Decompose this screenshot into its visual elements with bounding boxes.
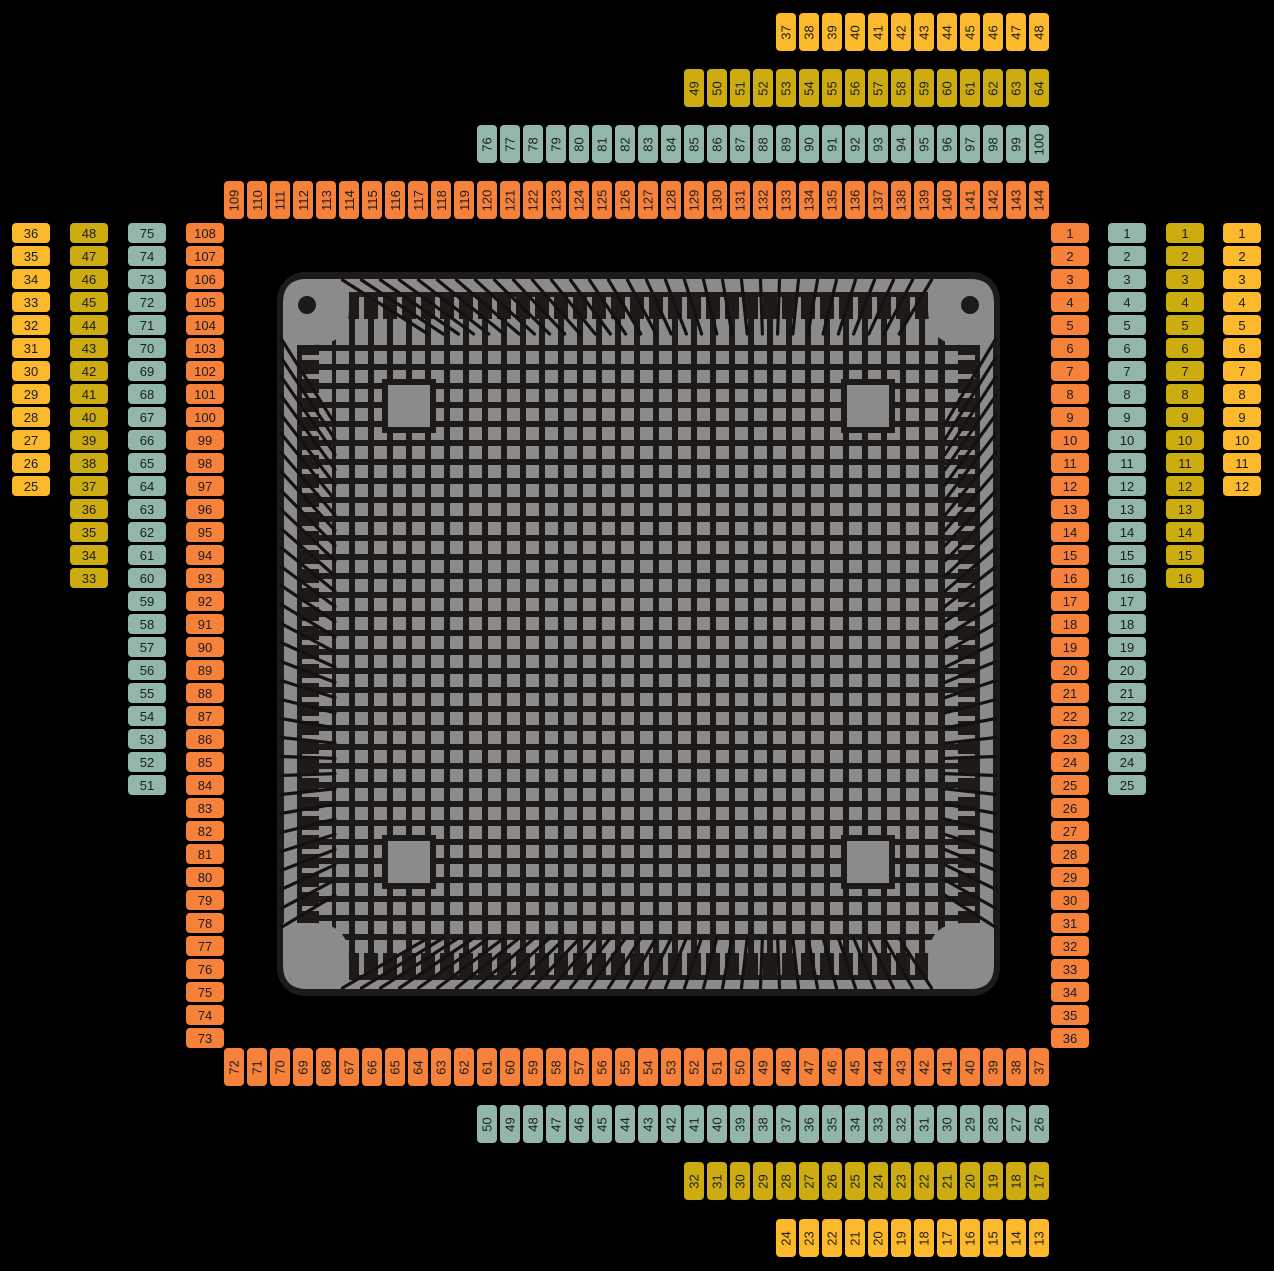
pin-number: 53	[140, 733, 154, 746]
pin-label-ring-100-left-74: 74	[128, 246, 166, 266]
pin-number: 31	[24, 342, 38, 355]
pin-number: 46	[826, 1060, 839, 1074]
pin-label-ring-64-bottom-29: 29	[753, 1162, 773, 1200]
pin-label-ring-48-bottom-16: 16	[960, 1219, 980, 1257]
pin-number: 133	[780, 189, 793, 211]
pin-label-ring-100-left-59: 59	[128, 591, 166, 611]
pin-label-ring-64-left-44: 44	[70, 315, 108, 335]
pin-label-ring-144-bottom-42: 42	[914, 1048, 934, 1086]
pin-number: 78	[527, 137, 540, 151]
pin-number: 86	[711, 137, 724, 151]
pin-number: 27	[1010, 1117, 1023, 1131]
pin-number: 90	[198, 641, 212, 654]
pin-label-ring-144-left-91: 91	[186, 614, 224, 634]
pin-number: 47	[803, 1060, 816, 1074]
pin-label-ring-48-bottom-24: 24	[776, 1219, 796, 1257]
pin-label-ring-144-left-98: 98	[186, 453, 224, 473]
pin-label-ring-144-top-130: 130	[707, 181, 727, 219]
pin-label-ring-144-bottom-67: 67	[339, 1048, 359, 1086]
pin-number: 40	[82, 411, 96, 424]
pin-number: 30	[734, 1174, 747, 1188]
pin-label-ring-144-left-106: 106	[186, 269, 224, 289]
pin-number: 51	[734, 81, 747, 95]
pin-number: 47	[550, 1117, 563, 1131]
pin-label-ring-100-top-79: 79	[546, 125, 566, 163]
pin-label-ring-144-bottom-44: 44	[868, 1048, 888, 1086]
pin-label-ring-64-bottom-27: 27	[799, 1162, 819, 1200]
pin-label-ring-144-bottom-65: 65	[385, 1048, 405, 1086]
pin-number: 15	[987, 1231, 1000, 1245]
pin-label-ring-100-bottom-50: 50	[477, 1105, 497, 1143]
pin-number: 5	[1181, 319, 1188, 332]
pin-number: 8	[1238, 388, 1245, 401]
pin-label-ring-144-right-20: 20	[1051, 660, 1089, 680]
pin-label-ring-64-left-36: 36	[70, 499, 108, 519]
pin-number: 31	[918, 1117, 931, 1131]
pin-number: 35	[1063, 1009, 1077, 1022]
pin-number: 24	[1120, 756, 1134, 769]
pin-label-ring-64-right-7: 7	[1166, 361, 1204, 381]
pin-label-ring-144-top-111: 111	[270, 181, 290, 219]
pin-label-ring-144-left-84: 84	[186, 775, 224, 795]
pin-number: 60	[504, 1060, 517, 1074]
pin-number: 26	[1033, 1117, 1046, 1131]
pin-label-ring-100-top-78: 78	[523, 125, 543, 163]
pin-label-ring-64-right-3: 3	[1166, 269, 1204, 289]
pin-label-ring-48-left-30: 30	[12, 361, 50, 381]
pin-label-ring-144-top-126: 126	[615, 181, 635, 219]
pin-label-ring-144-right-22: 22	[1051, 706, 1089, 726]
pin-number: 40	[964, 1060, 977, 1074]
pin-label-ring-48-top-42: 42	[891, 13, 911, 51]
pin-number: 49	[688, 81, 701, 95]
pin-label-ring-100-right-1: 1	[1108, 223, 1146, 243]
pin-number: 5	[1238, 319, 1245, 332]
pin-label-ring-144-left-108: 108	[186, 223, 224, 243]
pin-label-ring-144-bottom-63: 63	[431, 1048, 451, 1086]
pin-label-ring-100-left-58: 58	[128, 614, 166, 634]
pin-label-ring-144-bottom-38: 38	[1006, 1048, 1026, 1086]
pin-label-ring-100-right-15: 15	[1108, 545, 1146, 565]
pin-label-ring-48-right-2: 2	[1223, 246, 1261, 266]
pin-label-ring-64-bottom-19: 19	[983, 1162, 1003, 1200]
pin-number: 64	[140, 480, 154, 493]
pin-number: 73	[198, 1032, 212, 1045]
pin-label-ring-100-left-73: 73	[128, 269, 166, 289]
pin-number: 38	[757, 1117, 770, 1131]
pin-number: 123	[550, 189, 563, 211]
pin-label-ring-144-right-15: 15	[1051, 545, 1089, 565]
pin-label-ring-48-right-7: 7	[1223, 361, 1261, 381]
pin-number: 134	[803, 189, 816, 211]
pin-label-ring-100-top-83: 83	[638, 125, 658, 163]
pin-label-ring-48-top-48: 48	[1029, 13, 1049, 51]
pin-label-ring-64-bottom-18: 18	[1006, 1162, 1026, 1200]
pin-label-ring-48-top-43: 43	[914, 13, 934, 51]
pin-number: 49	[504, 1117, 517, 1131]
pin-label-ring-144-top-118: 118	[431, 181, 451, 219]
pin-label-ring-144-bottom-53: 53	[661, 1048, 681, 1086]
pin-label-ring-144-left-74: 74	[186, 1005, 224, 1025]
pin-label-ring-64-top-62: 62	[983, 69, 1003, 107]
pin-number: 18	[1010, 1174, 1023, 1188]
pin-number: 20	[1063, 664, 1077, 677]
pin-number: 128	[665, 189, 678, 211]
pin-number: 36	[82, 503, 96, 516]
pin-label-ring-64-right-9: 9	[1166, 407, 1204, 427]
pin-number: 74	[140, 250, 154, 263]
pin-label-ring-144-right-33: 33	[1051, 959, 1089, 979]
pin-number: 30	[24, 365, 38, 378]
pin-number: 22	[826, 1231, 839, 1245]
pin-label-ring-144-right-17: 17	[1051, 591, 1089, 611]
pin-label-ring-48-bottom-15: 15	[983, 1219, 1003, 1257]
pin-label-ring-100-top-100: 100	[1029, 125, 1049, 163]
pin-label-ring-100-bottom-46: 46	[569, 1105, 589, 1143]
pin-label-ring-64-top-58: 58	[891, 69, 911, 107]
pin-number: 47	[1010, 25, 1023, 39]
pin-number: 99	[1010, 137, 1023, 151]
pin-number: 50	[734, 1060, 747, 1074]
pin-number: 20	[872, 1231, 885, 1245]
pin-number: 55	[619, 1060, 632, 1074]
pin-label-ring-100-top-82: 82	[615, 125, 635, 163]
pin-label-ring-48-top-40: 40	[845, 13, 865, 51]
pin-number: 51	[140, 779, 154, 792]
pin-label-ring-144-bottom-37: 37	[1029, 1048, 1049, 1086]
pin-number: 115	[366, 190, 379, 211]
pin-number: 26	[826, 1174, 839, 1188]
pin-number: 12	[1235, 480, 1249, 493]
pin-label-ring-64-left-35: 35	[70, 522, 108, 542]
pin-number: 33	[1063, 963, 1077, 976]
pin-number: 7	[1238, 365, 1245, 378]
pin-number: 46	[82, 273, 96, 286]
pin-label-ring-144-right-13: 13	[1051, 499, 1089, 519]
pin-number: 36	[803, 1117, 816, 1131]
pin-number: 74	[198, 1009, 212, 1022]
pin-label-ring-100-left-69: 69	[128, 361, 166, 381]
pin-label-ring-100-left-63: 63	[128, 499, 166, 519]
pin-label-ring-144-left-94: 94	[186, 545, 224, 565]
pin-number: 105	[194, 296, 216, 309]
pin-number: 85	[688, 137, 701, 151]
pin-number: 4	[1066, 296, 1073, 309]
pin-label-ring-100-top-96: 96	[937, 125, 957, 163]
pin-number: 10	[1178, 434, 1192, 447]
pin-label-ring-48-top-39: 39	[822, 13, 842, 51]
pin-number: 70	[274, 1060, 287, 1074]
pin-number: 103	[194, 342, 216, 355]
pin-number: 63	[1010, 81, 1023, 95]
pin-label-ring-48-right-8: 8	[1223, 384, 1261, 404]
pin-number: 95	[198, 526, 212, 539]
pin-label-ring-100-bottom-37: 37	[776, 1105, 796, 1143]
pin-number: 25	[24, 480, 38, 493]
pin-label-ring-144-top-121: 121	[500, 181, 520, 219]
pin-number: 8	[1181, 388, 1188, 401]
pin-label-ring-100-top-93: 93	[868, 125, 888, 163]
pin-label-ring-48-right-5: 5	[1223, 315, 1261, 335]
pin-label-ring-144-bottom-39: 39	[983, 1048, 1003, 1086]
pin-label-ring-144-right-18: 18	[1051, 614, 1089, 634]
pin-number: 99	[198, 434, 212, 447]
pin-label-ring-48-right-11: 11	[1223, 453, 1261, 473]
pin-label-ring-144-right-28: 28	[1051, 844, 1089, 864]
pin-number: 58	[140, 618, 154, 631]
pin-number: 29	[1063, 871, 1077, 884]
pin-label-ring-100-right-2: 2	[1108, 246, 1146, 266]
pin-number: 24	[780, 1231, 793, 1245]
pin-number: 138	[895, 189, 908, 211]
pin-label-ring-144-right-27: 27	[1051, 821, 1089, 841]
pin-label-ring-100-top-76: 76	[477, 125, 497, 163]
pin-number: 104	[194, 319, 216, 332]
pin-label-ring-100-left-60: 60	[128, 568, 166, 588]
pin-label-ring-144-left-102: 102	[186, 361, 224, 381]
pin-label-ring-48-bottom-21: 21	[845, 1219, 865, 1257]
pin-number: 98	[987, 137, 1000, 151]
pin-number: 23	[1120, 733, 1134, 746]
pin-label-ring-144-bottom-61: 61	[477, 1048, 497, 1086]
pin-number: 14	[1010, 1231, 1023, 1245]
pin-number: 44	[941, 25, 954, 39]
pin-label-ring-100-right-14: 14	[1108, 522, 1146, 542]
pin-label-ring-144-left-89: 89	[186, 660, 224, 680]
pin-label-ring-100-right-12: 12	[1108, 476, 1146, 496]
pin-number: 125	[596, 189, 609, 211]
pin-label-ring-144-left-99: 99	[186, 430, 224, 450]
pin-number: 71	[251, 1060, 264, 1074]
pin-number: 26	[24, 457, 38, 470]
pin-number: 56	[596, 1060, 609, 1074]
pin-number: 62	[987, 81, 1000, 95]
pin-number: 31	[711, 1174, 724, 1188]
pin-label-ring-144-left-107: 107	[186, 246, 224, 266]
pin-number: 35	[826, 1117, 839, 1131]
pin-number: 72	[140, 296, 154, 309]
pin-label-ring-144-left-76: 76	[186, 959, 224, 979]
pin-label-ring-144-left-77: 77	[186, 936, 224, 956]
pin-number: 19	[895, 1231, 908, 1245]
pin-label-ring-144-top-117: 117	[408, 181, 428, 219]
pin-label-ring-144-top-123: 123	[546, 181, 566, 219]
pin-number: 16	[964, 1231, 977, 1245]
pin-number: 41	[688, 1117, 701, 1131]
pin-number: 116	[389, 190, 402, 211]
pin-label-ring-144-bottom-62: 62	[454, 1048, 474, 1086]
pin-number: 58	[550, 1060, 563, 1074]
pin-number: 18	[918, 1231, 931, 1245]
pin-number: 89	[780, 137, 793, 151]
pin-label-ring-64-bottom-32: 32	[684, 1162, 704, 1200]
pin-number: 143	[1010, 189, 1023, 211]
pin-number: 25	[1120, 779, 1134, 792]
pin-number: 23	[803, 1231, 816, 1245]
pin-label-ring-100-left-68: 68	[128, 384, 166, 404]
pin-label-ring-100-top-81: 81	[592, 125, 612, 163]
pin-number: 82	[198, 825, 212, 838]
pin-label-ring-144-bottom-72: 72	[224, 1048, 244, 1086]
pin-number: 17	[1033, 1174, 1046, 1188]
pin-label-ring-144-top-116: 116	[385, 181, 405, 219]
pin-label-ring-100-right-6: 6	[1108, 338, 1146, 358]
pin-label-ring-64-left-45: 45	[70, 292, 108, 312]
pin-label-ring-64-left-33: 33	[70, 568, 108, 588]
pin-number: 73	[140, 273, 154, 286]
pin-number: 58	[895, 81, 908, 95]
pin-label-ring-100-bottom-43: 43	[638, 1105, 658, 1143]
pin-number: 48	[1033, 25, 1046, 39]
pin-label-ring-144-right-12: 12	[1051, 476, 1089, 496]
pin-number: 80	[573, 137, 586, 151]
pin-label-ring-64-left-41: 41	[70, 384, 108, 404]
pin-number: 34	[24, 273, 38, 286]
pin-label-ring-144-bottom-51: 51	[707, 1048, 727, 1086]
pin-number: 87	[198, 710, 212, 723]
pin-label-ring-144-top-136: 136	[845, 181, 865, 219]
pin-label-ring-144-right-2: 2	[1051, 246, 1089, 266]
pin-label-ring-64-right-16: 16	[1166, 568, 1204, 588]
pin-number: 9	[1066, 411, 1073, 424]
pin-label-ring-144-left-78: 78	[186, 913, 224, 933]
pin-label-ring-144-left-92: 92	[186, 591, 224, 611]
pin-number: 2	[1238, 250, 1245, 263]
pin-label-ring-100-top-80: 80	[569, 125, 589, 163]
pin-label-ring-64-top-53: 53	[776, 69, 796, 107]
pin-number: 23	[895, 1174, 908, 1188]
pin-label-ring-144-top-141: 141	[960, 181, 980, 219]
pin-label-ring-64-bottom-25: 25	[845, 1162, 865, 1200]
pin-label-ring-144-left-82: 82	[186, 821, 224, 841]
pin-label-ring-100-left-66: 66	[128, 430, 166, 450]
pin-label-ring-100-right-23: 23	[1108, 729, 1146, 749]
pin-number: 34	[1063, 986, 1077, 999]
pin-number: 36	[1063, 1032, 1077, 1045]
pin-label-ring-48-right-1: 1	[1223, 223, 1261, 243]
pin-label-ring-64-right-15: 15	[1166, 545, 1204, 565]
pin-number: 91	[198, 618, 212, 631]
pin-label-ring-64-left-48: 48	[70, 223, 108, 243]
pin-label-ring-64-right-4: 4	[1166, 292, 1204, 312]
pin-number: 6	[1181, 342, 1188, 355]
pin-number: 108	[194, 227, 216, 240]
pin-number: 112	[297, 190, 310, 211]
pin-number: 38	[1010, 1060, 1023, 1074]
pin-number: 61	[964, 81, 977, 95]
pin-number: 55	[140, 687, 154, 700]
pin-number: 33	[872, 1117, 885, 1131]
pin-number: 23	[1063, 733, 1077, 746]
pin-number: 39	[734, 1117, 747, 1131]
pin-number: 9	[1181, 411, 1188, 424]
pin-label-ring-100-top-85: 85	[684, 125, 704, 163]
pin-label-ring-144-top-110: 110	[247, 181, 267, 219]
pin-number: 15	[1120, 549, 1134, 562]
pin-label-ring-144-top-120: 120	[477, 181, 497, 219]
pin-number: 16	[1178, 572, 1192, 585]
pin-label-ring-64-left-34: 34	[70, 545, 108, 565]
pin-label-ring-100-bottom-48: 48	[523, 1105, 543, 1143]
pin-number: 17	[1120, 595, 1134, 608]
pin-label-ring-100-bottom-45: 45	[592, 1105, 612, 1143]
pin-number: 76	[198, 963, 212, 976]
pin-label-ring-144-bottom-48: 48	[776, 1048, 796, 1086]
pin-label-ring-64-top-63: 63	[1006, 69, 1026, 107]
pin-number: 100	[1033, 133, 1046, 155]
pin-number: 3	[1181, 273, 1188, 286]
pin-label-ring-144-bottom-46: 46	[822, 1048, 842, 1086]
pin-number: 3	[1123, 273, 1130, 286]
pin-number: 19	[1120, 641, 1134, 654]
pin-number: 32	[688, 1174, 701, 1188]
pin-label-ring-144-right-26: 26	[1051, 798, 1089, 818]
pin-label-ring-144-top-131: 131	[730, 181, 750, 219]
pin-number: 37	[780, 1117, 793, 1131]
pin-label-ring-100-bottom-34: 34	[845, 1105, 865, 1143]
pin-number: 126	[619, 189, 632, 211]
pin-number: 68	[320, 1060, 333, 1074]
pin-label-ring-100-bottom-33: 33	[868, 1105, 888, 1143]
pin-number: 10	[1235, 434, 1249, 447]
pin-label-ring-64-bottom-24: 24	[868, 1162, 888, 1200]
pin-label-ring-144-right-34: 34	[1051, 982, 1089, 1002]
pin-number: 69	[140, 365, 154, 378]
pin-number: 14	[1120, 526, 1134, 539]
pin-label-ring-144-left-80: 80	[186, 867, 224, 887]
pin-number: 10	[1063, 434, 1077, 447]
pin-label-ring-100-right-10: 10	[1108, 430, 1146, 450]
pin-label-ring-100-right-25: 25	[1108, 775, 1146, 795]
pin-number: 51	[711, 1060, 724, 1074]
pin-number: 19	[1063, 641, 1077, 654]
pin-number: 102	[194, 365, 216, 378]
pin-label-ring-144-left-93: 93	[186, 568, 224, 588]
pin-label-ring-144-left-79: 79	[186, 890, 224, 910]
pin-number: 54	[803, 81, 816, 95]
pin-number: 55	[826, 81, 839, 95]
pin-number: 20	[964, 1174, 977, 1188]
pin-number: 12	[1120, 480, 1134, 493]
pin-label-ring-100-bottom-27: 27	[1006, 1105, 1026, 1143]
pin-number: 3	[1066, 273, 1073, 286]
pin-number: 9	[1123, 411, 1130, 424]
pin-number: 79	[550, 137, 563, 151]
pin-number: 72	[228, 1060, 241, 1074]
pin-number: 39	[987, 1060, 1000, 1074]
pin-number: 91	[826, 137, 839, 151]
pin-label-ring-64-bottom-28: 28	[776, 1162, 796, 1200]
pin-label-ring-100-left-75: 75	[128, 223, 166, 243]
pin-label-ring-48-right-4: 4	[1223, 292, 1261, 312]
pin-label-ring-64-top-57: 57	[868, 69, 888, 107]
pin-label-ring-144-right-9: 9	[1051, 407, 1089, 427]
pin-label-ring-144-right-21: 21	[1051, 683, 1089, 703]
pin-number: 142	[987, 189, 1000, 211]
pin-label-ring-144-top-124: 124	[569, 181, 589, 219]
pin-label-ring-48-left-29: 29	[12, 384, 50, 404]
pin-label-ring-48-left-27: 27	[12, 430, 50, 450]
pin-label-ring-100-bottom-42: 42	[661, 1105, 681, 1143]
pin-label-ring-64-bottom-31: 31	[707, 1162, 727, 1200]
pin-number: 64	[1033, 81, 1046, 95]
pin-number: 40	[711, 1117, 724, 1131]
pin-label-ring-144-left-100: 100	[186, 407, 224, 427]
pin-number: 45	[596, 1117, 609, 1131]
pin-label-ring-100-left-61: 61	[128, 545, 166, 565]
pin-number: 44	[82, 319, 96, 332]
pin-number: 53	[665, 1060, 678, 1074]
